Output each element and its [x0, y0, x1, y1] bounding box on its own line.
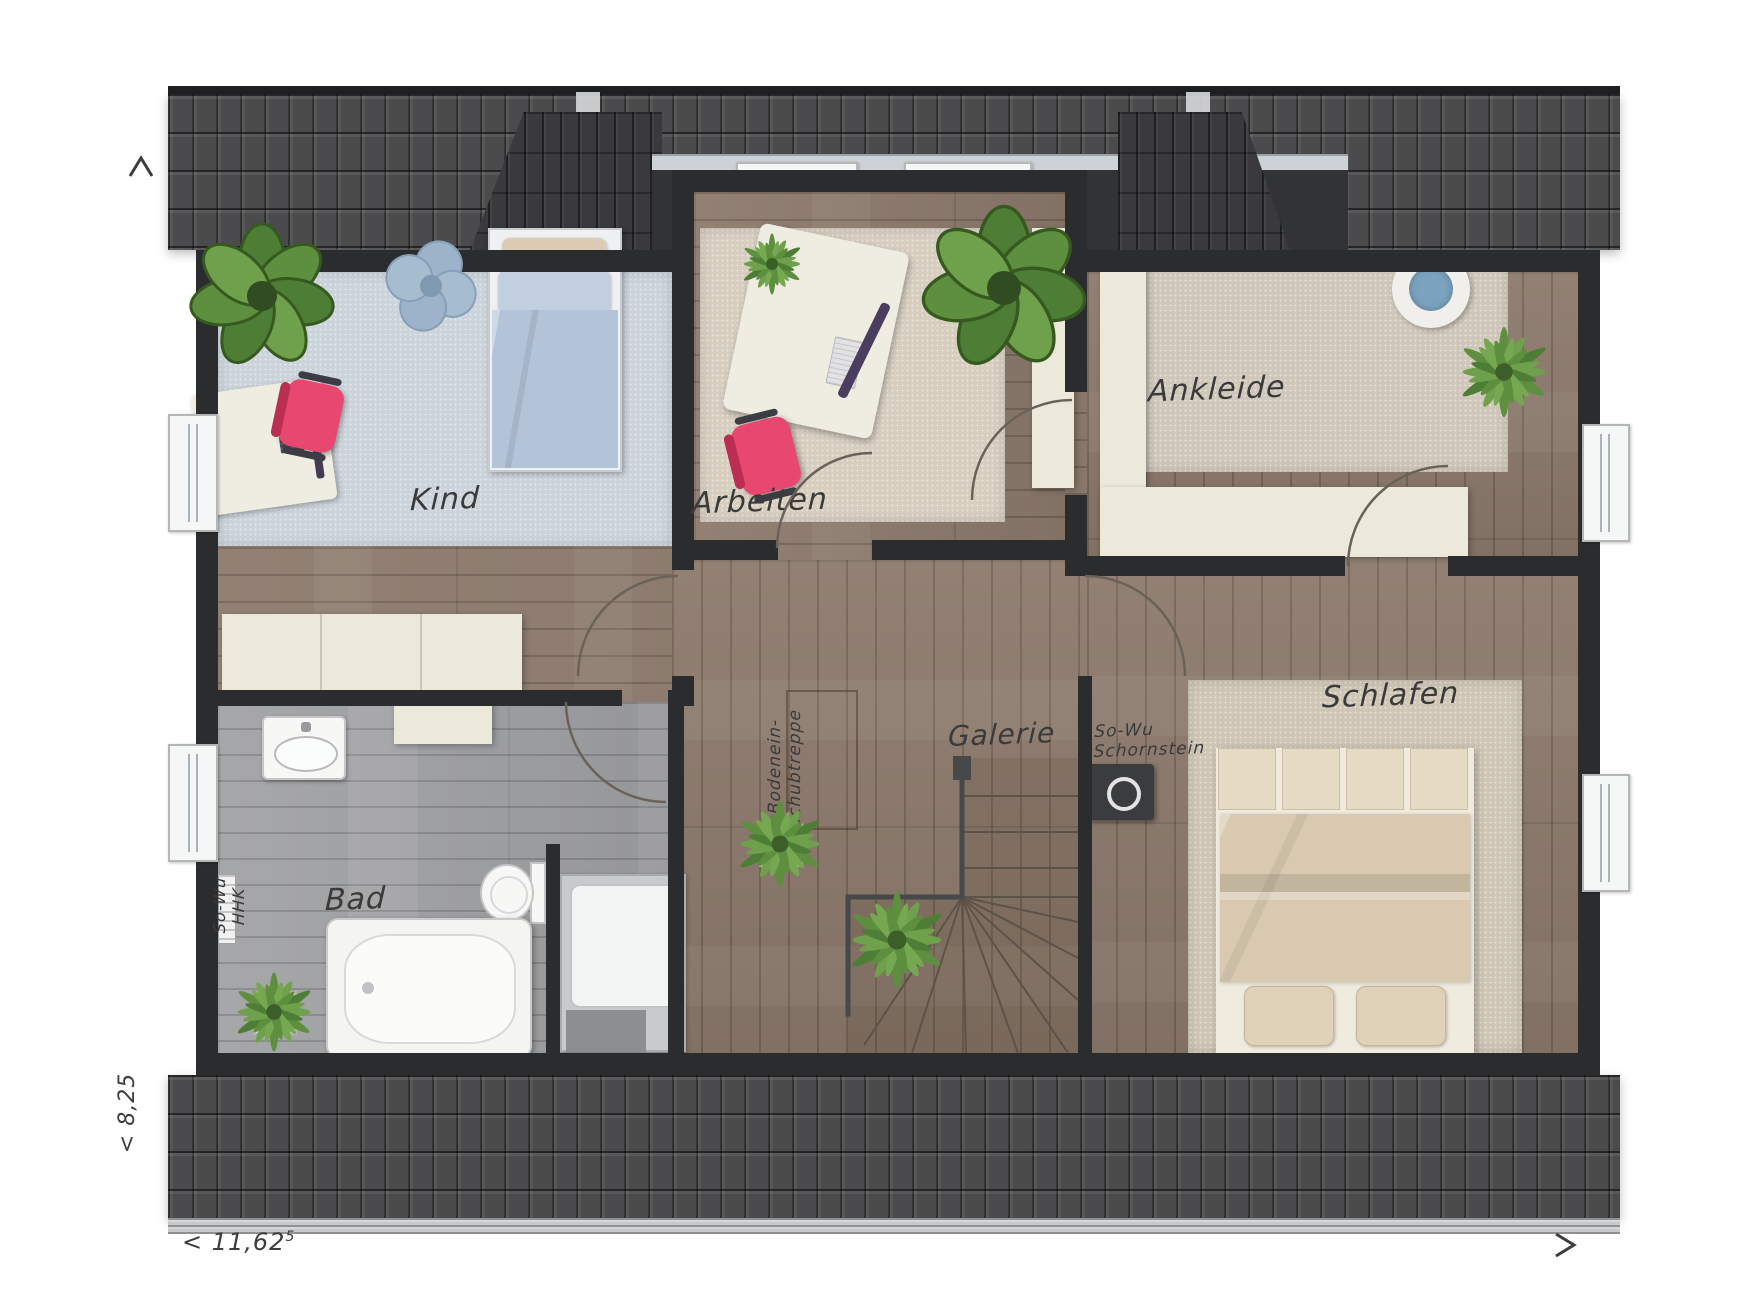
floor-plan-canvas: Kind Arbeiten Ankleide Schlafen Bad Gale…	[0, 0, 1754, 1316]
door-arc-ankleide	[1348, 466, 1448, 566]
dimension-arrow-right-icon	[1556, 1234, 1574, 1256]
kind-flower-pouf	[372, 227, 490, 345]
plant-arbeiten-icon	[919, 206, 1089, 372]
door-arc-schlafen	[1085, 576, 1185, 676]
plant-galerie-a-icon	[738, 801, 823, 887]
door-arc-kind	[578, 576, 678, 676]
door-arcs	[566, 400, 1448, 802]
staircase-newel-post	[953, 756, 971, 780]
door-arc-arbeiten	[777, 453, 872, 548]
plant-kind-icon	[187, 224, 337, 371]
plant-arbeiten-desk-icon	[742, 233, 802, 294]
plant-ankleide-icon	[1460, 327, 1549, 417]
door-arc-ankleide-inner	[972, 400, 1072, 500]
plant-bad-icon	[235, 972, 313, 1051]
door-arc-bad	[566, 702, 666, 802]
dimension-arrow-up-icon	[130, 158, 152, 176]
plan-overlay	[0, 0, 1754, 1316]
